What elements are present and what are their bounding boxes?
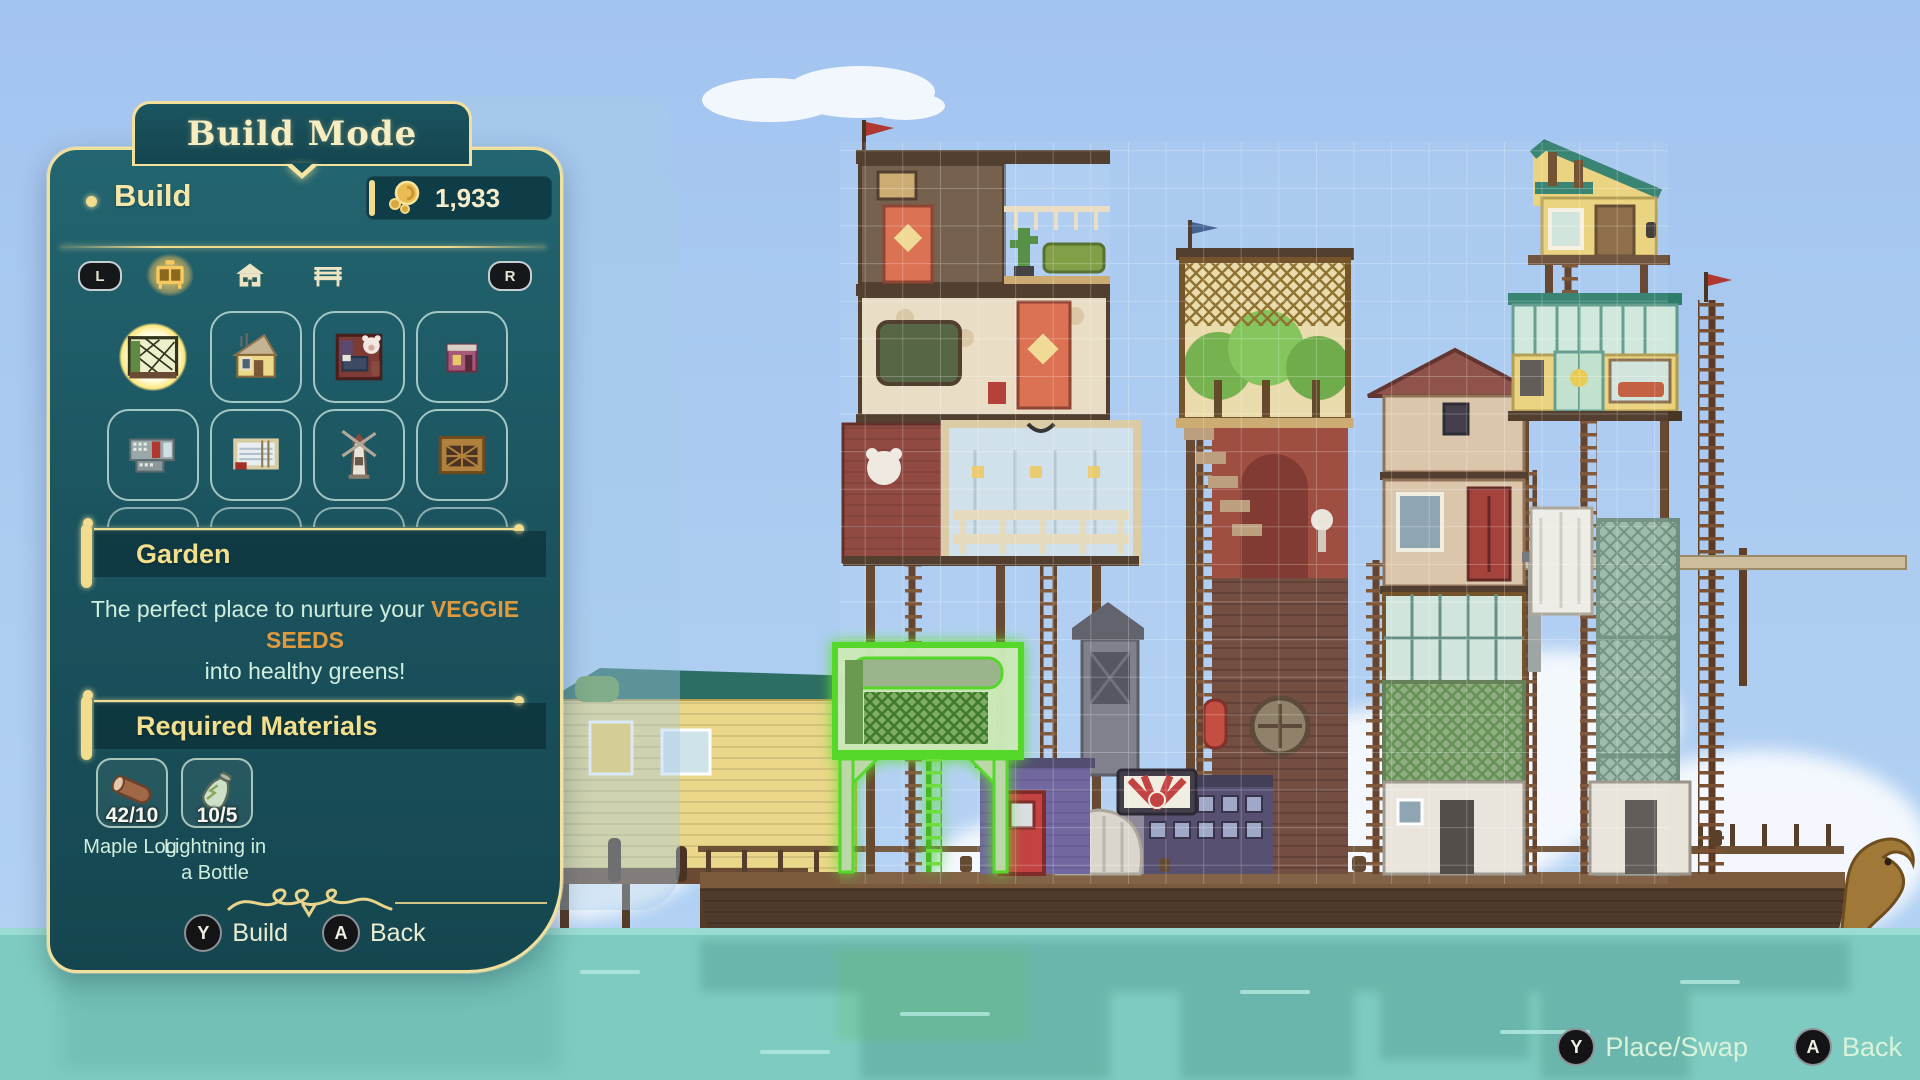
thumb-garden: [123, 327, 183, 387]
material-count: 42/10: [98, 804, 166, 828]
section-bar: [81, 524, 92, 588]
build-panel: Build 1,933 L R: [47, 147, 563, 973]
grid-overlay[interactable]: [840, 142, 1668, 884]
shoulder-left-label: L: [95, 268, 104, 285]
description-text-line2: into healthy greens!: [205, 658, 406, 684]
grid-item-guest-house[interactable]: [210, 311, 302, 403]
house-icon: [235, 260, 265, 290]
category-tab-buildings[interactable]: [230, 256, 270, 294]
material-name: Lightning in a Bottle: [160, 834, 270, 886]
bench-icon: [312, 260, 344, 290]
section-line: [94, 528, 518, 530]
item-name-band: Garden: [94, 531, 546, 577]
grid-item-bedroom[interactable]: [313, 311, 405, 403]
button-a-icon: A: [1794, 1028, 1832, 1066]
description-text: The perfect place to nurture your: [91, 596, 431, 622]
tab-bullet-icon: [86, 196, 97, 207]
thumb-shop: [433, 328, 491, 386]
currency-chip: 1,933: [366, 176, 552, 220]
material-count: 10/5: [183, 804, 251, 828]
build-button-label: Build: [232, 919, 288, 948]
button-y-icon: Y: [1557, 1028, 1595, 1066]
back-button[interactable]: A Back: [322, 914, 426, 952]
shoulder-left-button[interactable]: L: [78, 261, 122, 291]
thumb-loom: [227, 426, 285, 484]
screen-hints: Y Place/Swap A Back: [1557, 1028, 1902, 1066]
back-button-label: Back: [370, 919, 426, 948]
category-tab-furniture[interactable]: [150, 256, 190, 294]
footer-hairline: [395, 902, 547, 904]
materials-title: Required Materials: [136, 711, 378, 742]
grid-item-loom[interactable]: [210, 409, 302, 501]
material-card-maple-log: 42/10: [96, 758, 168, 828]
build-mode-title: Build Mode: [187, 114, 418, 154]
header-divider: [60, 246, 546, 248]
thumb-bedroom: [330, 328, 388, 386]
thumb-windmill: [330, 426, 388, 484]
place-swap-label: Place/Swap: [1605, 1032, 1748, 1063]
section-line: [94, 700, 518, 702]
build-button[interactable]: Y Build: [184, 914, 288, 952]
thumb-pen: [433, 426, 491, 484]
build-mode-screen: Build Mode Build 1,933 L R: [0, 0, 1920, 1080]
grid-item-kitchen[interactable]: [107, 409, 199, 501]
grid-item-peek[interactable]: [210, 507, 302, 527]
grid-item-shop[interactable]: [416, 311, 508, 403]
grid-item-peek[interactable]: [313, 507, 405, 527]
glim-coin-icon: [385, 180, 423, 216]
shoulder-right-label: R: [505, 268, 516, 285]
build-mode-title-tab: Build Mode: [132, 101, 472, 166]
thumb-guest-house: [227, 328, 285, 386]
currency-chip-accent: [369, 180, 375, 216]
panel-buttons: Y Build A Back: [50, 914, 560, 952]
grid-item-pen[interactable]: [416, 409, 508, 501]
place-swap-hint[interactable]: Y Place/Swap: [1557, 1028, 1748, 1066]
material-card-lightning-bottle: 10/5: [181, 758, 253, 828]
button-a-icon: A: [322, 914, 360, 952]
grid-item-garden[interactable]: [107, 311, 199, 403]
title-notch-icon: [285, 164, 319, 179]
back-hint-label: Back: [1842, 1032, 1902, 1063]
category-tab-outdoor[interactable]: [308, 256, 348, 294]
currency-amount: 1,933: [435, 183, 500, 214]
selected-item-name: Garden: [136, 539, 231, 570]
grid-item-windmill[interactable]: [313, 409, 405, 501]
button-y-icon: Y: [184, 914, 222, 952]
shoulder-right-button[interactable]: R: [488, 261, 532, 291]
item-description: The perfect place to nurture your VEGGIE…: [50, 594, 560, 687]
stove-icon: [154, 259, 186, 291]
materials-band: Required Materials: [94, 703, 546, 749]
grid-item-peek[interactable]: [107, 507, 199, 527]
grid-item-peek[interactable]: [416, 507, 508, 527]
back-hint[interactable]: A Back: [1794, 1028, 1902, 1066]
panel-tab-label: Build: [114, 178, 192, 214]
thumb-kitchen: [124, 426, 182, 484]
section-bar: [81, 696, 92, 760]
